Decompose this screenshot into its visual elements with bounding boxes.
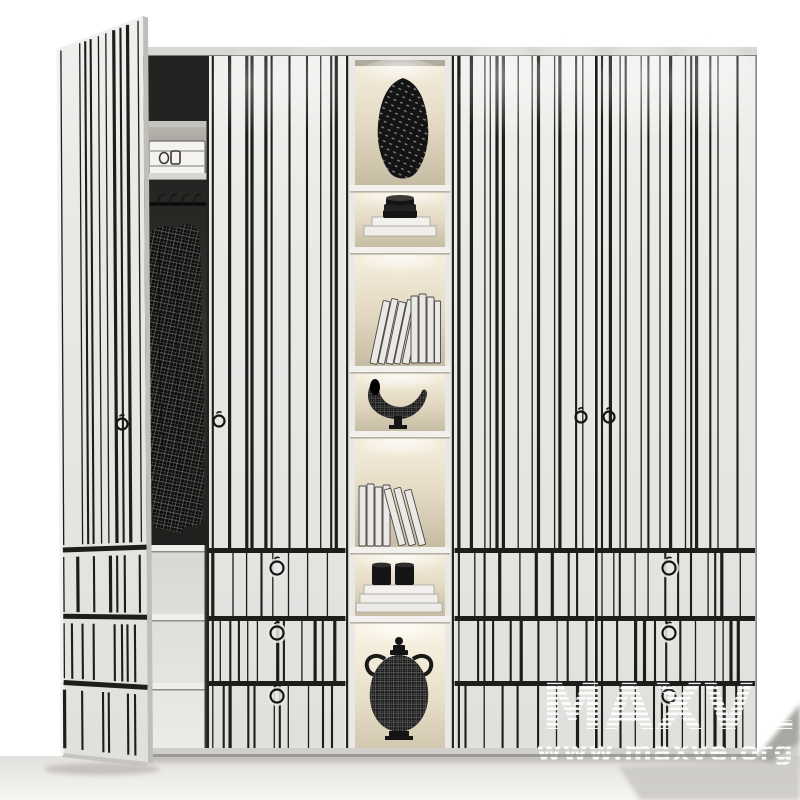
door-panel-2 bbox=[209, 56, 346, 748]
wardrobe-cabinet bbox=[141, 38, 758, 757]
display-shelf-column bbox=[347, 56, 453, 750]
storage-box bbox=[149, 141, 205, 174]
render-stage: MAXVE www.maxve.org bbox=[0, 0, 800, 800]
wardrobe-3d-render bbox=[0, 0, 800, 800]
plinth bbox=[141, 748, 757, 757]
door-panel-3 bbox=[455, 56, 595, 748]
hanging-clothes bbox=[147, 224, 205, 533]
open-door bbox=[57, 16, 154, 767]
door-panel-4 bbox=[598, 56, 756, 748]
